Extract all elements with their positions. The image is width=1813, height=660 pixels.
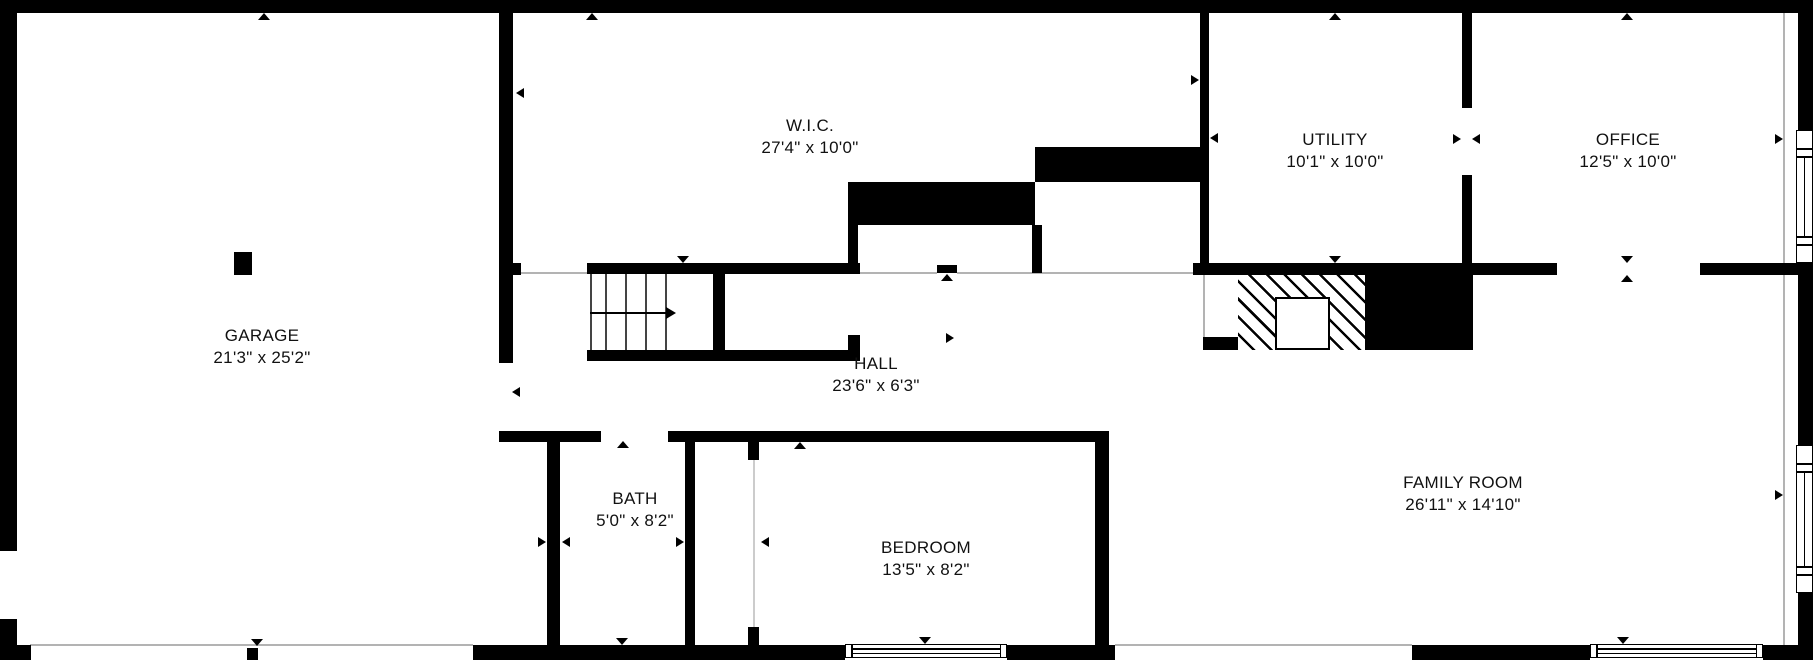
wall	[17, 645, 31, 660]
window-glazing-line	[852, 648, 1000, 650]
room-name-garage: GARAGE	[213, 325, 310, 347]
door-marker-up	[617, 441, 629, 448]
wall	[848, 225, 858, 263]
window-mullion	[1797, 463, 1812, 465]
door-marker-right	[676, 537, 684, 547]
window-mullion	[1797, 148, 1812, 150]
wall	[685, 441, 695, 647]
door-marker-down	[616, 638, 628, 645]
wall	[1700, 263, 1798, 275]
opening-line	[1783, 13, 1785, 645]
wall	[1462, 175, 1472, 263]
wall	[1798, 263, 1813, 445]
door-marker-left	[1210, 133, 1218, 143]
door-gap-line	[753, 460, 755, 627]
window-mullion	[1797, 566, 1812, 568]
wall	[668, 431, 1108, 442]
room-dims-family-room: 26'11" x 14'10"	[1403, 494, 1523, 516]
wall	[0, 619, 17, 660]
window	[845, 644, 1007, 658]
wall	[1200, 13, 1209, 263]
door-marker-up	[258, 13, 270, 20]
wall	[234, 252, 252, 275]
room-dims-bath: 5'0" x 8'2"	[596, 510, 674, 532]
door-marker-left	[9, 539, 17, 549]
door-marker-left	[1472, 134, 1480, 144]
stairs-direction-line	[590, 312, 670, 314]
window-glazing-line	[1804, 472, 1806, 566]
window-glazing-line	[1804, 157, 1806, 236]
door-marker-down	[251, 639, 263, 646]
door-marker-right	[1775, 490, 1783, 500]
room-name-bedroom: BEDROOM	[881, 537, 971, 559]
room-name-bath: BATH	[596, 488, 674, 510]
wall	[499, 13, 513, 363]
wall	[1365, 272, 1473, 350]
room-label-utility: UTILITY 10'1" x 10'0"	[1286, 129, 1383, 173]
opening-line	[860, 272, 937, 274]
wall	[1095, 431, 1109, 660]
wall	[848, 182, 1035, 225]
wall	[748, 627, 759, 647]
fireplace-insert	[1275, 297, 1330, 350]
door-marker-left	[512, 387, 520, 397]
opening-line	[519, 272, 587, 274]
window-mullion	[1797, 236, 1812, 238]
wall	[937, 265, 957, 273]
window-mullion	[1000, 645, 1002, 657]
window-mullion	[1797, 244, 1812, 246]
room-label-garage: GARAGE 21'3" x 25'2"	[213, 325, 310, 369]
door-marker-up	[1621, 13, 1633, 20]
door-marker-down	[919, 637, 931, 644]
stairs-direction-arrow	[666, 307, 676, 319]
door-marker-right	[946, 333, 954, 343]
room-label-family-room: FAMILY ROOM 26'11" x 14'10"	[1403, 472, 1523, 516]
room-name-hall: HALL	[832, 353, 919, 375]
room-name-utility: UTILITY	[1286, 129, 1383, 151]
wall	[1763, 645, 1813, 660]
window	[1590, 644, 1763, 658]
window-mullion	[1596, 645, 1598, 657]
door-marker-up	[794, 442, 806, 449]
door-marker-up	[586, 13, 598, 20]
room-label-hall: HALL 23'6" x 6'3"	[832, 353, 919, 397]
room-dims-office: 12'5" x 10'0"	[1579, 151, 1676, 173]
door-marker-down	[677, 256, 689, 263]
wall	[247, 648, 258, 660]
opening-line	[1203, 275, 1205, 337]
room-label-office: OFFICE 12'5" x 10'0"	[1579, 129, 1676, 173]
room-name-family-room: FAMILY ROOM	[1403, 472, 1523, 494]
window-mullion	[1756, 645, 1758, 657]
door-marker-left	[562, 537, 570, 547]
window-glazing-line	[852, 653, 1000, 655]
door-marker-down	[1329, 256, 1341, 263]
room-dims-garage: 21'3" x 25'2"	[213, 347, 310, 369]
window-glazing-line	[1597, 653, 1756, 655]
wall	[1462, 13, 1472, 108]
wall	[1472, 263, 1557, 275]
wall	[1035, 147, 1209, 182]
wall	[1412, 645, 1590, 660]
door-marker-right	[1775, 134, 1783, 144]
room-dims-wic: 27'4" x 10'0"	[761, 137, 858, 159]
wall	[513, 263, 521, 275]
door-marker-down	[1617, 637, 1629, 644]
door-marker-left	[761, 537, 769, 547]
wall	[0, 0, 17, 551]
opening-line	[1115, 644, 1412, 646]
wall	[848, 335, 860, 350]
door-marker-down	[1621, 256, 1633, 263]
wall	[587, 263, 860, 274]
wall	[473, 645, 845, 660]
room-dims-bedroom: 13'5" x 8'2"	[881, 559, 971, 581]
window-glazing-line	[1597, 648, 1756, 650]
wall	[748, 441, 759, 460]
wall	[0, 0, 1813, 13]
door-marker-up	[1621, 275, 1633, 282]
wall	[713, 274, 725, 350]
door-marker-right	[538, 537, 546, 547]
door-marker-up	[941, 274, 953, 281]
room-name-wic: W.I.C.	[761, 115, 858, 137]
room-label-bath: BATH 5'0" x 8'2"	[596, 488, 674, 532]
opening-line	[957, 272, 1193, 274]
room-dims-hall: 23'6" x 6'3"	[832, 375, 919, 397]
wall	[587, 350, 860, 361]
wall	[1798, 0, 1813, 130]
window-mullion	[851, 645, 853, 657]
wall	[1032, 225, 1042, 273]
room-label-wic: W.I.C. 27'4" x 10'0"	[761, 115, 858, 159]
wall	[1203, 337, 1238, 350]
room-dims-utility: 10'1" x 10'0"	[1286, 151, 1383, 173]
window-mullion	[1797, 574, 1812, 576]
floor-plan: GARAGE 21'3" x 25'2" W.I.C. 27'4" x 10'0…	[0, 0, 1813, 660]
room-label-bedroom: BEDROOM 13'5" x 8'2"	[881, 537, 971, 581]
door-marker-left	[516, 88, 524, 98]
door-marker-up	[1329, 13, 1341, 20]
door-marker-right	[1191, 75, 1199, 85]
door-marker-right	[1453, 134, 1461, 144]
room-name-office: OFFICE	[1579, 129, 1676, 151]
wall	[547, 441, 560, 647]
